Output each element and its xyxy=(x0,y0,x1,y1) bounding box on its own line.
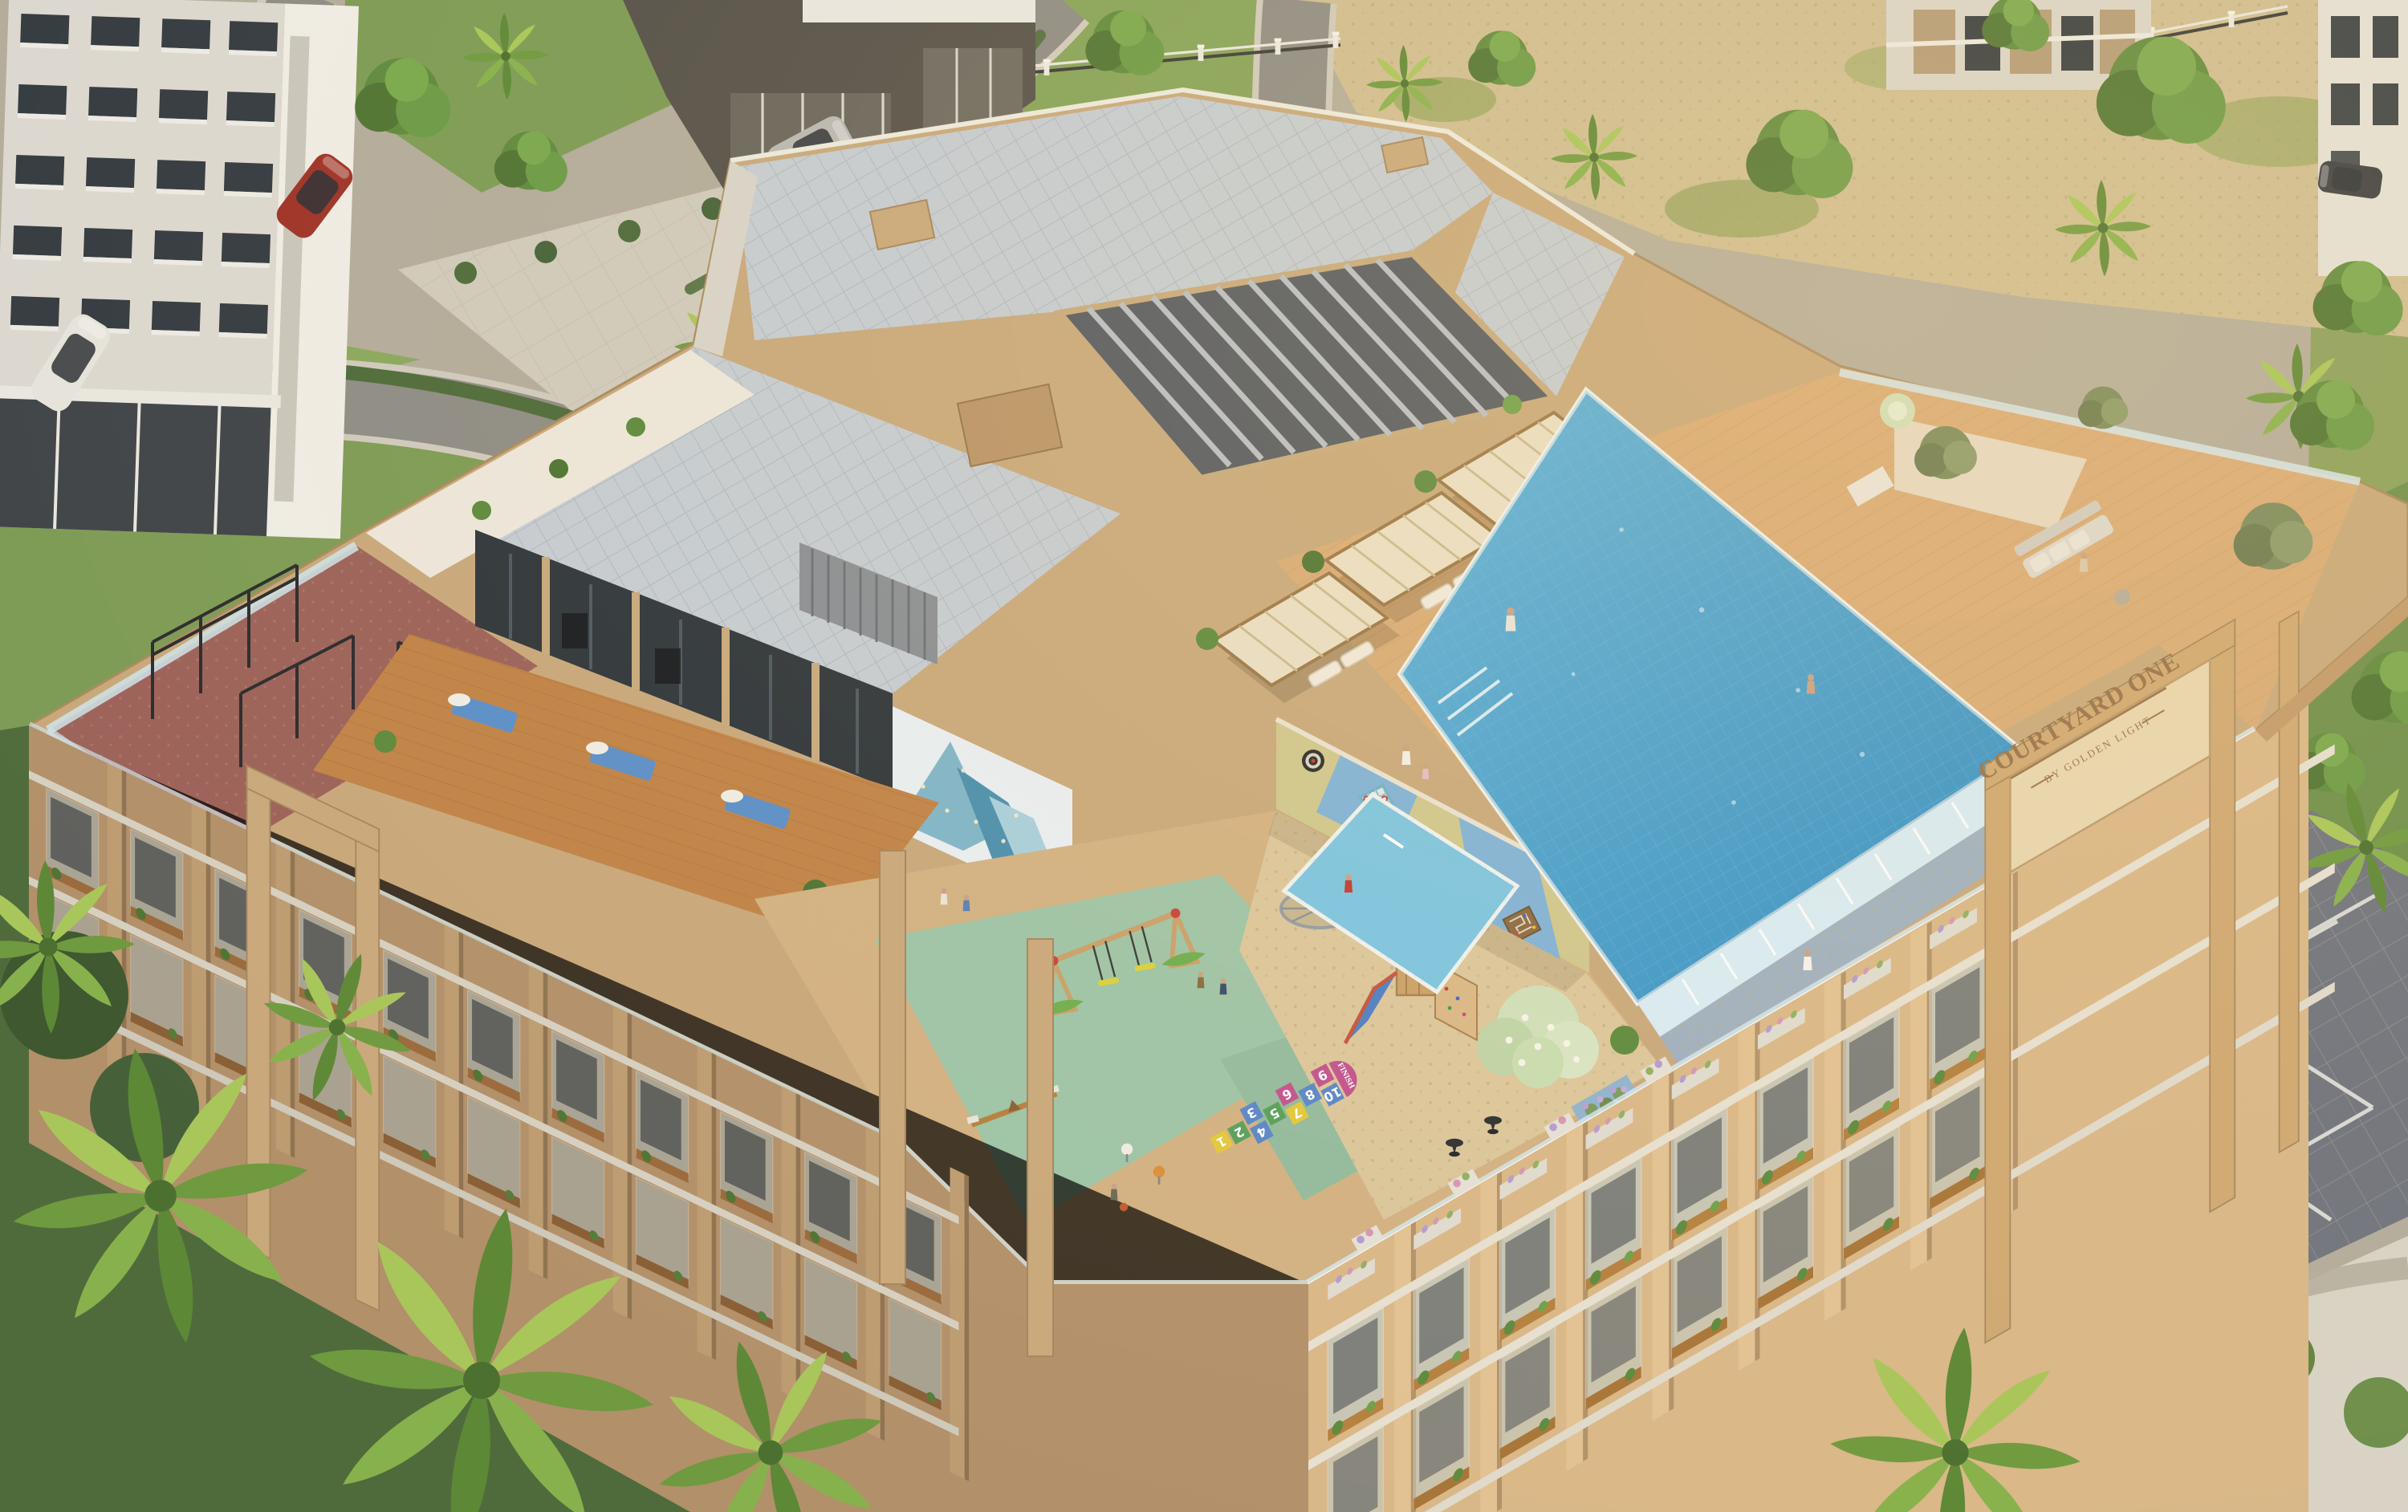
aerial-render: 1 2 3 4 5 6 7 8 9 10 FINISH xyxy=(0,0,2408,1512)
golden-hour-overlay xyxy=(0,0,2408,1512)
